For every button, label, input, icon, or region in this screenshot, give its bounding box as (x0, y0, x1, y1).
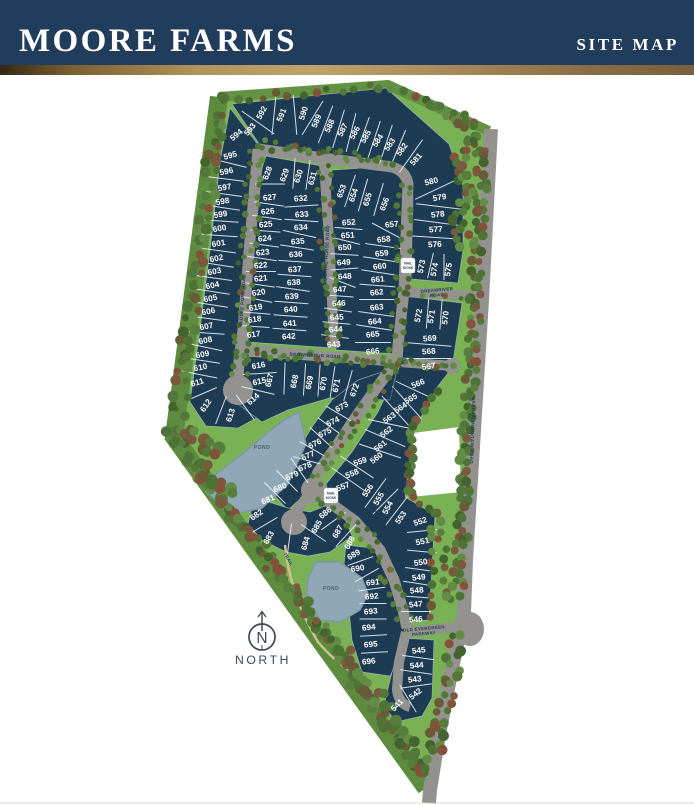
svg-text:658: 658 (376, 234, 391, 244)
svg-text:695: 695 (364, 639, 379, 649)
svg-text:641: 641 (283, 319, 298, 329)
svg-text:642: 642 (282, 332, 297, 342)
svg-text:636: 636 (289, 250, 304, 260)
svg-text:POND: POND (254, 445, 270, 451)
svg-text:646: 646 (332, 299, 347, 309)
svg-text:635: 635 (291, 237, 306, 247)
svg-text:578: 578 (430, 209, 445, 219)
svg-text:KIOSK: KIOSK (326, 496, 337, 500)
svg-text:548: 548 (410, 585, 425, 595)
svg-text:644: 644 (329, 325, 344, 335)
svg-text:633: 633 (295, 210, 310, 220)
svg-text:627: 627 (262, 192, 277, 202)
svg-text:639: 639 (285, 292, 300, 302)
svg-text:692: 692 (365, 591, 380, 601)
svg-text:664: 664 (367, 316, 382, 326)
svg-text:632: 632 (294, 194, 309, 204)
svg-text:624: 624 (257, 233, 272, 243)
svg-text:N: N (256, 630, 267, 647)
svg-text:546: 546 (409, 615, 424, 625)
svg-text:568: 568 (422, 347, 437, 357)
svg-text:KIOSK: KIOSK (403, 266, 414, 270)
svg-text:547: 547 (409, 599, 424, 609)
svg-text:693: 693 (364, 606, 379, 616)
svg-text:544: 544 (410, 660, 425, 670)
svg-text:640: 640 (284, 305, 299, 315)
svg-text:577: 577 (429, 225, 444, 235)
svg-text:666: 666 (365, 346, 380, 356)
svg-text:649: 649 (337, 258, 352, 268)
svg-text:659: 659 (374, 248, 389, 258)
svg-text:694: 694 (361, 622, 376, 632)
svg-text:645: 645 (330, 313, 345, 323)
svg-text:626: 626 (260, 206, 275, 216)
svg-text:696: 696 (361, 656, 376, 666)
svg-text:549: 549 (411, 572, 426, 582)
svg-text:663: 663 (369, 302, 384, 312)
svg-text:657: 657 (384, 219, 399, 229)
svg-text:625: 625 (258, 219, 273, 229)
svg-text:643: 643 (327, 340, 342, 350)
svg-text:691: 691 (365, 577, 380, 587)
svg-text:662: 662 (369, 287, 384, 297)
svg-text:543: 543 (407, 674, 422, 684)
svg-text:638: 638 (287, 278, 302, 288)
svg-text:661: 661 (370, 274, 385, 284)
svg-text:660: 660 (372, 261, 387, 271)
svg-text:648: 648 (338, 272, 353, 282)
svg-text:569: 569 (423, 334, 438, 344)
svg-text:545: 545 (411, 645, 426, 655)
svg-text:570: 570 (440, 310, 450, 325)
svg-text:576: 576 (428, 240, 443, 250)
svg-text:665: 665 (365, 329, 380, 339)
svg-text:MAIL: MAIL (404, 262, 412, 266)
svg-text:621: 621 (253, 273, 268, 283)
svg-text:622: 622 (253, 260, 268, 270)
svg-text:637: 637 (288, 265, 303, 275)
svg-text:634: 634 (294, 223, 309, 233)
svg-text:623: 623 (255, 247, 270, 257)
svg-text:POND: POND (323, 586, 339, 592)
svg-text:651: 651 (341, 231, 356, 241)
svg-text:650: 650 (338, 243, 353, 253)
svg-text:652: 652 (342, 218, 357, 228)
svg-text:NORTH: NORTH (235, 653, 291, 667)
svg-text:MAIL: MAIL (327, 492, 335, 496)
svg-text:647: 647 (333, 285, 348, 295)
